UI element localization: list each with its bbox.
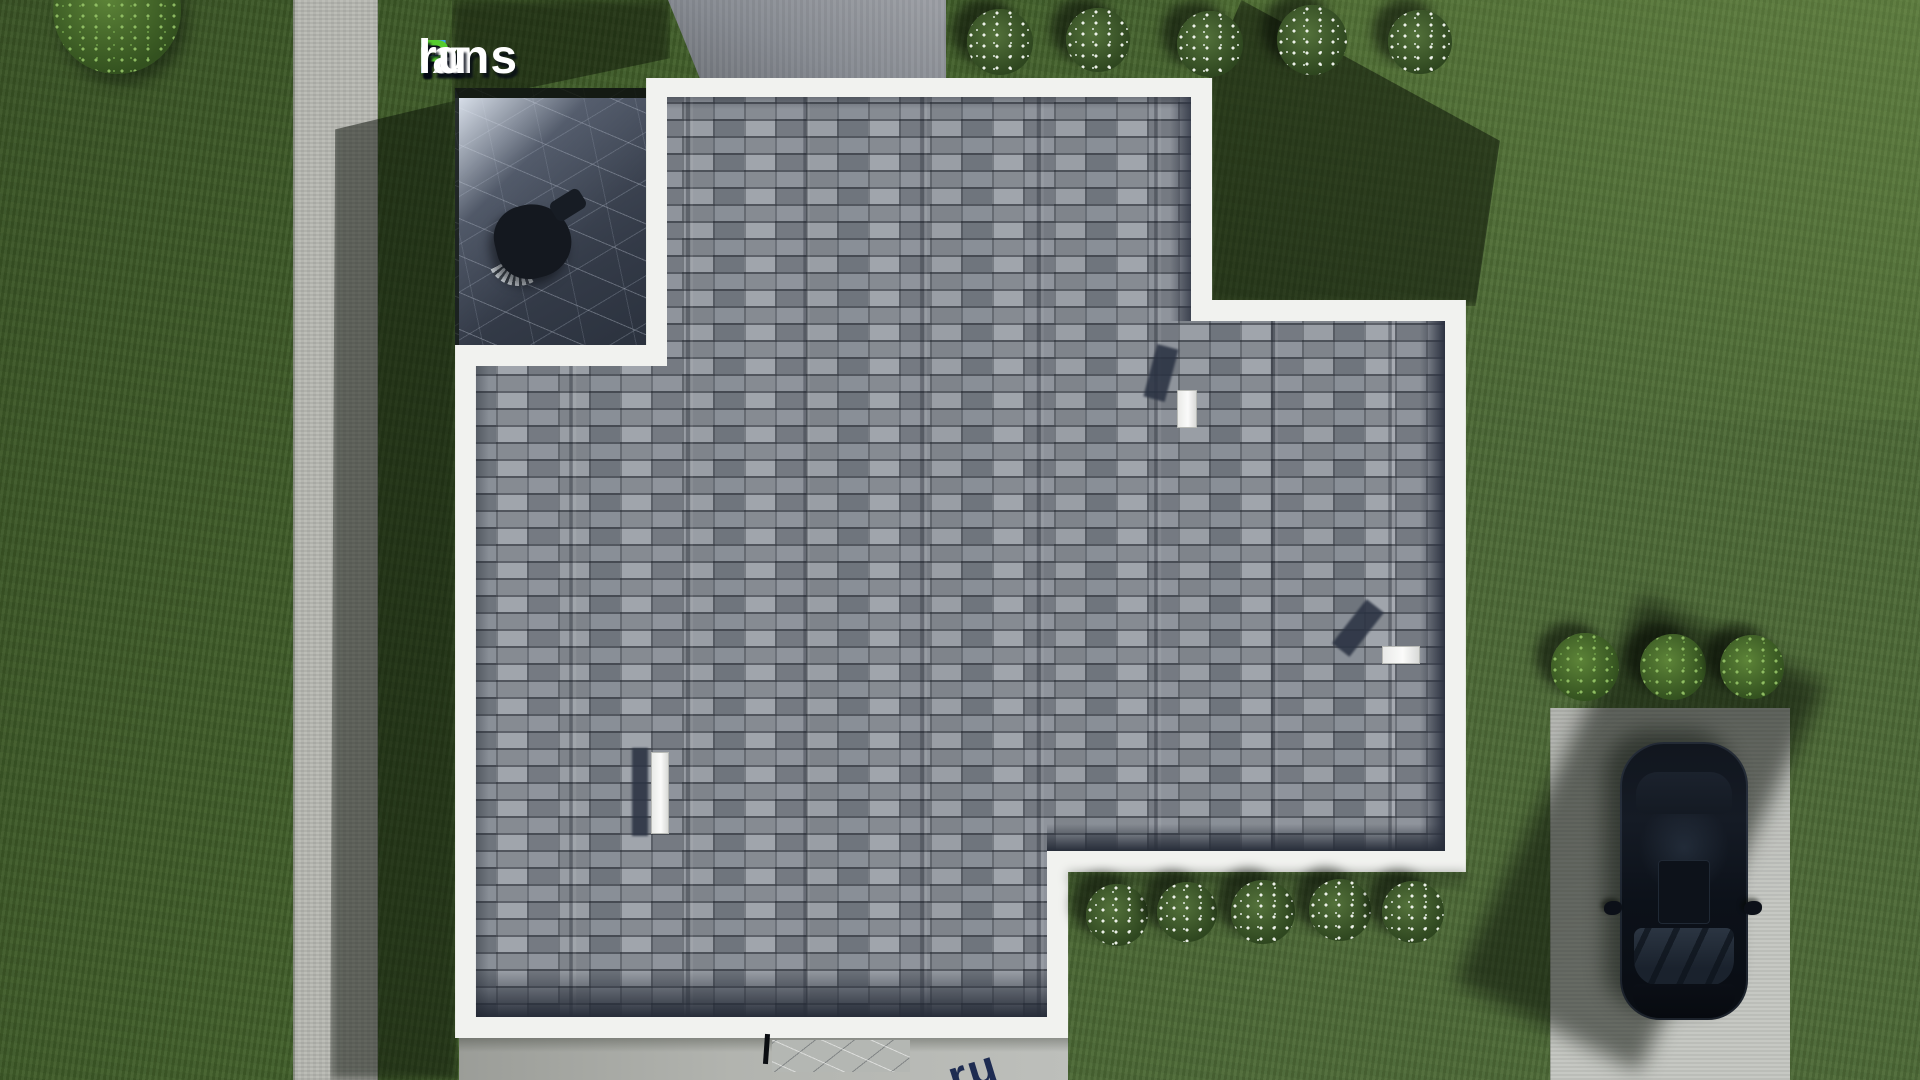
- car: [1620, 742, 1748, 1020]
- roof-vent: [1382, 646, 1420, 664]
- flowering-bush: [1382, 881, 1444, 943]
- bush-foliage: [1086, 884, 1148, 946]
- car-mirror-right: [1744, 901, 1762, 915]
- roof-shaded-edge-left: [476, 366, 489, 1017]
- flowering-bush: [1231, 880, 1295, 944]
- bush-foliage: [1382, 881, 1444, 943]
- aerial-house-render: FixPlans.ru ru: [0, 0, 1920, 1080]
- car-sunroof: [1658, 860, 1710, 924]
- car-hood: [1632, 984, 1736, 1018]
- bush-foliage: [1277, 5, 1347, 75]
- bush-foliage: [1640, 634, 1706, 700]
- roof-vent-shadow: [632, 748, 648, 836]
- roof-shaded-edge-right: [1420, 321, 1445, 851]
- logo-letter: ru: [418, 30, 468, 85]
- car-rear-window: [1636, 772, 1732, 814]
- stone-doormat: [772, 1040, 910, 1072]
- green-bush: [1551, 633, 1619, 701]
- bush-foliage: [1231, 880, 1295, 944]
- flowering-bush: [1309, 879, 1371, 941]
- flowering-bush: [1177, 11, 1243, 77]
- green-bush: [1720, 635, 1784, 699]
- flowering-bush: [967, 9, 1033, 75]
- flowering-bush: [1066, 8, 1130, 72]
- roof-shaded-edge-top: [667, 97, 1191, 109]
- car-windshield: [1634, 928, 1734, 986]
- roof-vent: [651, 752, 669, 834]
- bush-foliage: [1551, 633, 1619, 701]
- bush-foliage: [1720, 635, 1784, 699]
- flowering-bush: [1388, 10, 1452, 74]
- flowering-bush: [1086, 884, 1148, 946]
- bush-foliage: [1388, 10, 1452, 74]
- green-bush: [1640, 634, 1706, 700]
- stone-terrace: [455, 88, 646, 345]
- bush-foliage: [967, 9, 1033, 75]
- bush-foliage: [1177, 11, 1243, 77]
- house-shadow-left: [330, 100, 458, 1080]
- roof-shaded-edge-step: [1047, 824, 1445, 851]
- flowering-bush: [1277, 5, 1347, 75]
- flowering-bush: [1157, 882, 1217, 942]
- bush-foliage: [1066, 8, 1130, 72]
- bush-foliage: [1309, 879, 1371, 941]
- car-mirror-left: [1604, 901, 1622, 915]
- roof-shaded-edge-bottom: [476, 968, 1047, 1017]
- roof-vent: [1177, 390, 1197, 428]
- bush-foliage: [1157, 882, 1217, 942]
- roof-shaded-edge-topright: [1170, 97, 1191, 321]
- entrance-walkway-pad: [668, 0, 946, 82]
